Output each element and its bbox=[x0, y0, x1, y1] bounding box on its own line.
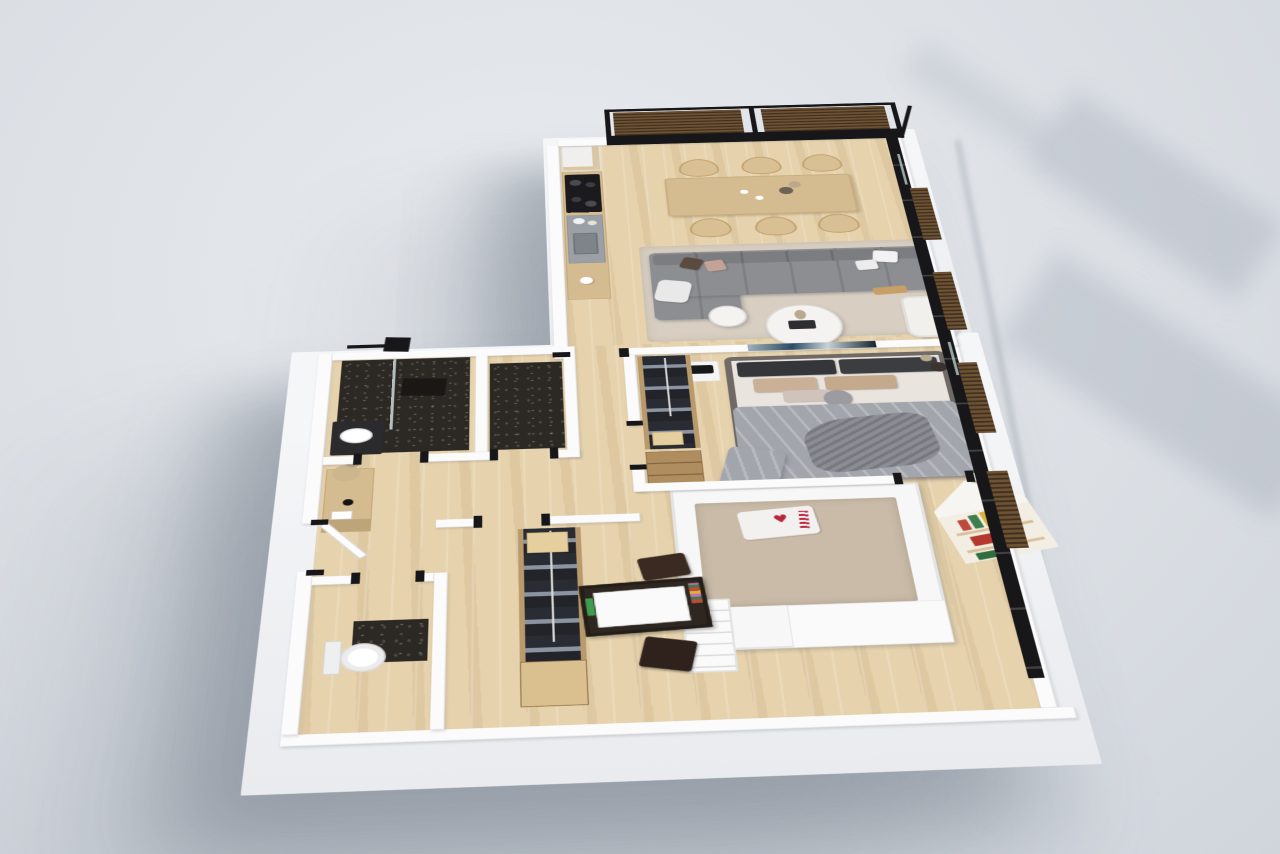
door-frame-mark bbox=[415, 570, 424, 582]
kitchen-sink bbox=[573, 233, 599, 255]
studio-scene: ♥ bbox=[0, 0, 1280, 854]
pillow-small bbox=[782, 389, 828, 402]
wall bbox=[475, 355, 488, 452]
books bbox=[331, 511, 353, 520]
door-frame-mark bbox=[619, 348, 629, 357]
door-frame-mark bbox=[474, 516, 483, 528]
headboard-cushion-dark bbox=[736, 360, 837, 377]
kids-desk bbox=[579, 577, 713, 637]
shower-mat bbox=[401, 379, 447, 396]
loft-front-panel bbox=[787, 600, 955, 648]
door-frame-mark bbox=[550, 447, 559, 458]
glazing-post bbox=[890, 102, 903, 131]
pillow-white bbox=[873, 250, 898, 262]
door-frame-mark bbox=[630, 464, 647, 470]
door-frame-mark bbox=[490, 449, 498, 460]
door-frame-mark bbox=[306, 570, 324, 576]
pillow-tan bbox=[824, 375, 898, 391]
glazing-post bbox=[604, 110, 611, 139]
rain-shower-head bbox=[383, 337, 411, 351]
door-frame-mark bbox=[541, 514, 550, 526]
kids-wardrobe-drawers bbox=[520, 660, 589, 708]
door-frame-mark bbox=[552, 352, 570, 357]
floor-shower-room bbox=[490, 362, 566, 450]
door-frame-mark bbox=[353, 453, 362, 464]
wardrobe-box bbox=[652, 431, 684, 445]
door-frame-mark bbox=[351, 572, 361, 584]
wardrobe-top-box bbox=[527, 532, 569, 554]
floor-plan: ♥ bbox=[297, 137, 1061, 746]
pillow-white bbox=[854, 259, 879, 270]
desk-chair bbox=[639, 636, 698, 671]
wall bbox=[436, 518, 479, 527]
desk-surface bbox=[593, 586, 691, 628]
window-shadow-band bbox=[902, 40, 1058, 161]
cooktop bbox=[564, 174, 602, 213]
desk-books-stack bbox=[688, 583, 703, 604]
pillow-red-stripe bbox=[798, 511, 810, 528]
heart-icon: ♥ bbox=[771, 512, 790, 526]
glazing-post bbox=[748, 106, 758, 135]
door-frame-mark bbox=[420, 451, 429, 462]
coffee-table-tray bbox=[788, 320, 816, 329]
door-frame-mark bbox=[626, 421, 643, 426]
throw-blanket bbox=[653, 279, 692, 303]
kitchen-tall-cabinet bbox=[561, 145, 602, 171]
door-frame-mark bbox=[311, 519, 329, 525]
